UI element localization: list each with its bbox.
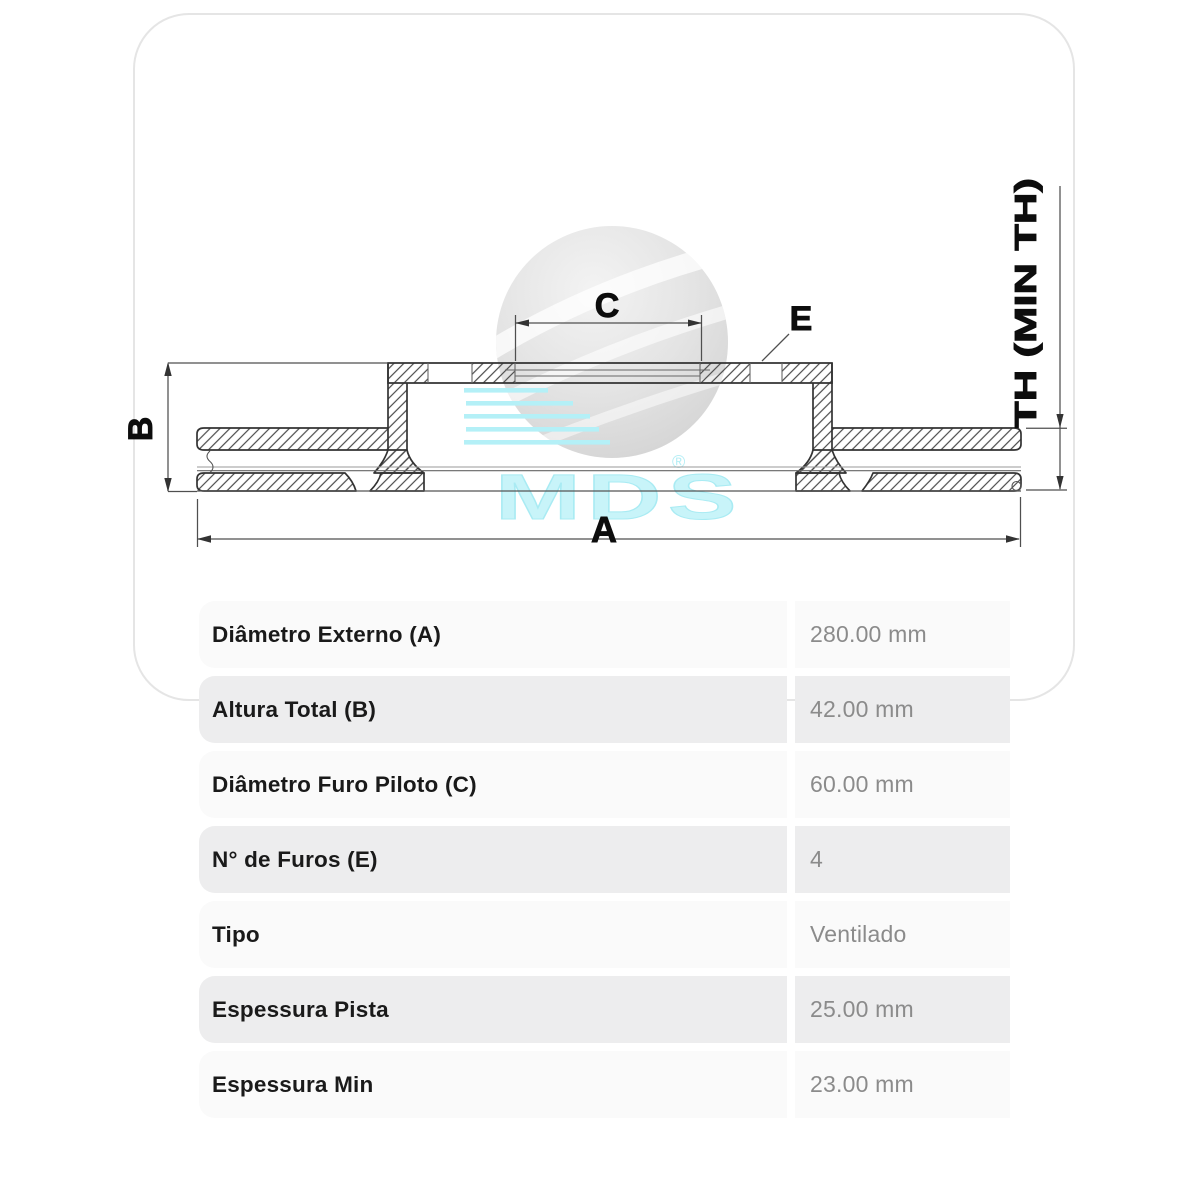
spec-value: 25.00 mm (795, 976, 1010, 1043)
table-row: Diâmetro Furo Piloto (C) 60.00 mm (0, 751, 1200, 818)
product-spec-page: { "diagram": { "dimension_labels": { "ou… (0, 0, 1200, 1200)
spec-value: 23.00 mm (795, 1051, 1010, 1118)
spec-value: 60.00 mm (795, 751, 1010, 818)
brake-disc-technical-drawing: MDS ® (0, 0, 1200, 600)
table-row: Tipo Ventilado (0, 901, 1200, 968)
dim-label-c: C (595, 287, 620, 325)
dim-label-e: E (790, 300, 813, 338)
spec-label: Diâmetro Furo Piloto (C) (199, 751, 787, 818)
watermark-sphere (466, 226, 804, 458)
table-row: Espessura Pista 25.00 mm (0, 976, 1200, 1043)
watermark-registered-icon: ® (672, 452, 685, 472)
spec-value: 4 (795, 826, 1010, 893)
table-row: N° de Furos (E) 4 (0, 826, 1200, 893)
watermark-brand-text: MDS (495, 461, 743, 533)
spec-label: Tipo (199, 901, 787, 968)
spec-label: N° de Furos (E) (199, 826, 787, 893)
dim-label-th: TH (MIN TH) (1008, 178, 1043, 428)
spec-label: Espessura Pista (199, 976, 787, 1043)
dim-label-a: A (591, 509, 617, 550)
spec-label: Espessura Min (199, 1051, 787, 1118)
dim-label-b: B (122, 417, 160, 442)
spec-value: Ventilado (795, 901, 1010, 968)
table-row: Espessura Min 23.00 mm (0, 1051, 1200, 1118)
